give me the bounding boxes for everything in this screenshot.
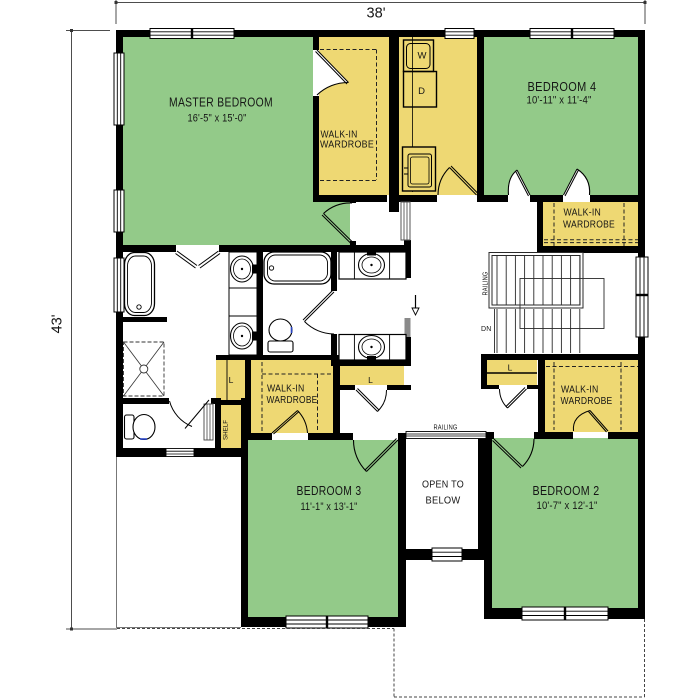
- svg-text:BEDROOM 2: BEDROOM 2: [533, 484, 600, 498]
- svg-text:W: W: [418, 51, 427, 62]
- svg-text:L: L: [368, 375, 373, 385]
- svg-text:WALK-IN: WALK-IN: [561, 384, 599, 396]
- svg-text:MASTER BEDROOM: MASTER BEDROOM: [169, 96, 273, 110]
- svg-text:16'-5" x 15'-0": 16'-5" x 15'-0": [188, 113, 247, 125]
- svg-text:RAILING: RAILING: [434, 425, 458, 432]
- svg-text:10'-11" x 11'-4": 10'-11" x 11'-4": [527, 95, 592, 107]
- svg-text:WALK-IN: WALK-IN: [564, 207, 602, 219]
- svg-text:RAILING: RAILING: [483, 272, 490, 296]
- svg-text:SHELF: SHELF: [223, 420, 230, 440]
- svg-text:BELOW: BELOW: [426, 495, 461, 507]
- svg-text:WARDROBE: WARDROBE: [561, 395, 613, 407]
- svg-text:OPEN TO: OPEN TO: [422, 479, 464, 491]
- svg-text:WARDROBE: WARDROBE: [267, 394, 318, 406]
- svg-text:WARDROBE: WARDROBE: [320, 139, 374, 151]
- svg-text:D: D: [418, 86, 425, 97]
- svg-text:BEDROOM 3: BEDROOM 3: [297, 484, 362, 498]
- svg-text:WARDROBE: WARDROBE: [563, 219, 615, 231]
- svg-text:DN: DN: [481, 326, 492, 333]
- svg-text:43': 43': [49, 314, 66, 333]
- svg-text:11'-1" x 13'-1": 11'-1" x 13'-1": [301, 501, 358, 513]
- svg-text:WALK-IN: WALK-IN: [267, 383, 305, 395]
- svg-text:L: L: [508, 363, 513, 373]
- svg-text:BEDROOM 4: BEDROOM 4: [528, 80, 597, 94]
- svg-text:38': 38': [367, 5, 386, 22]
- svg-text:L: L: [229, 375, 234, 385]
- svg-text:10'-7" x 12'-1": 10'-7" x 12'-1": [537, 500, 598, 512]
